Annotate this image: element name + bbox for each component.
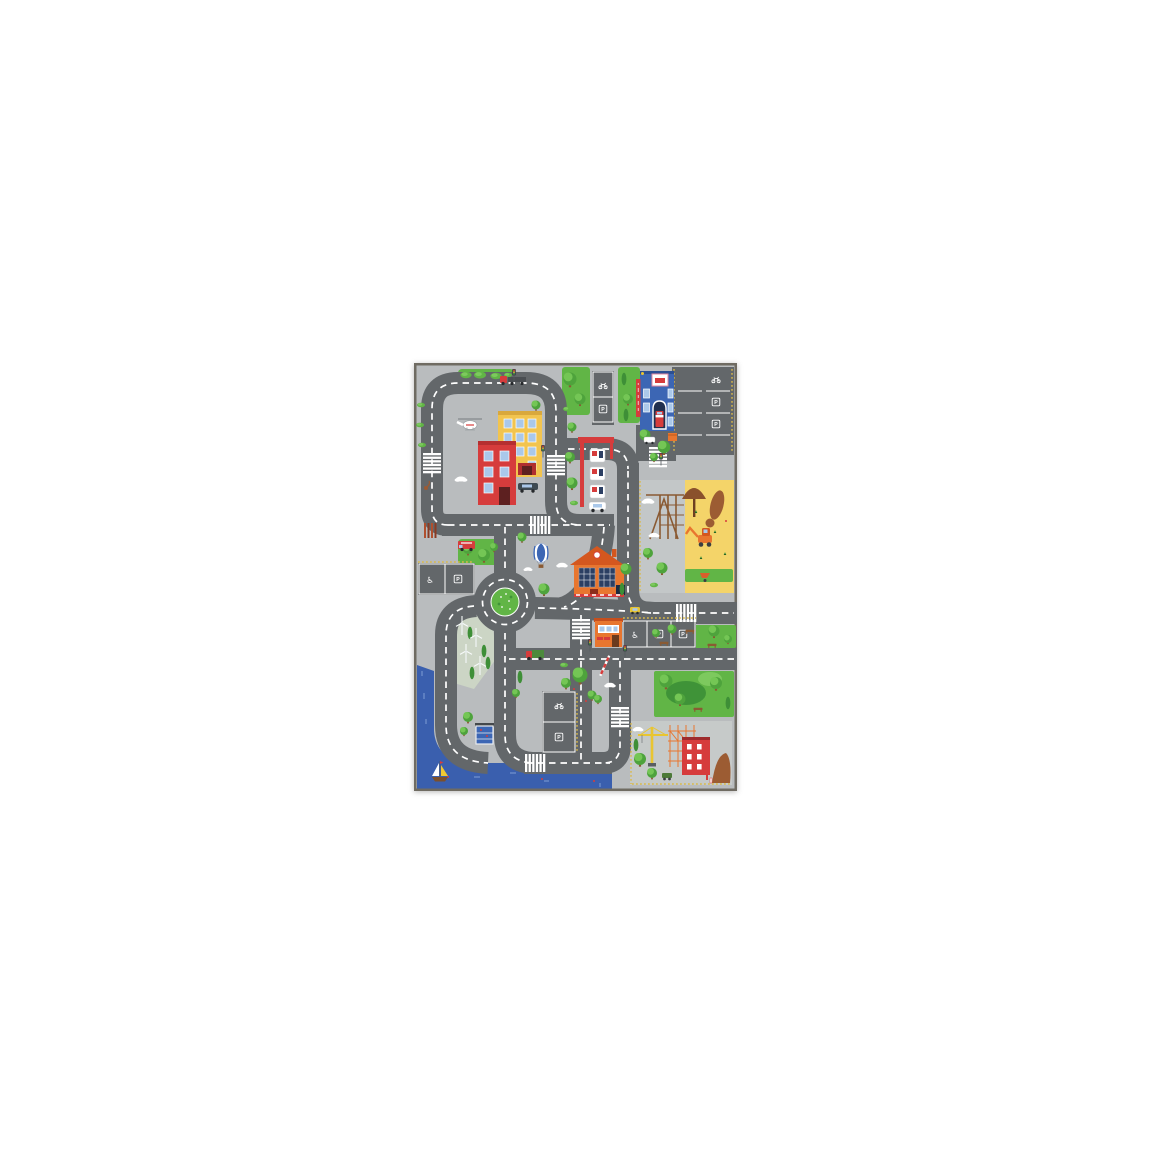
newsstand-shelter bbox=[475, 723, 494, 744]
street-kiosk bbox=[594, 618, 623, 647]
truck-top-road bbox=[500, 376, 526, 385]
building-under-construction bbox=[682, 737, 710, 775]
fire-truck bbox=[656, 411, 664, 427]
parking-lot-top-right bbox=[672, 367, 734, 455]
fuel-pumps bbox=[590, 449, 605, 498]
product-photo-canvas: P bbox=[0, 0, 1152, 1152]
clock bbox=[594, 552, 600, 558]
roof-lamp bbox=[641, 372, 644, 375]
construction-site bbox=[630, 721, 732, 785]
roundabout-island bbox=[491, 588, 519, 616]
handicap-icon: ♿ bbox=[426, 576, 434, 586]
door bbox=[612, 635, 619, 647]
city-play-mat: P bbox=[414, 363, 737, 791]
chimney bbox=[612, 549, 617, 557]
buoy bbox=[593, 780, 595, 782]
buoy bbox=[541, 778, 543, 780]
handicap-icon: ♿ bbox=[631, 631, 639, 641]
parking-lot-firestation-west bbox=[592, 371, 614, 425]
door bbox=[499, 487, 510, 505]
dumpster bbox=[668, 433, 677, 441]
